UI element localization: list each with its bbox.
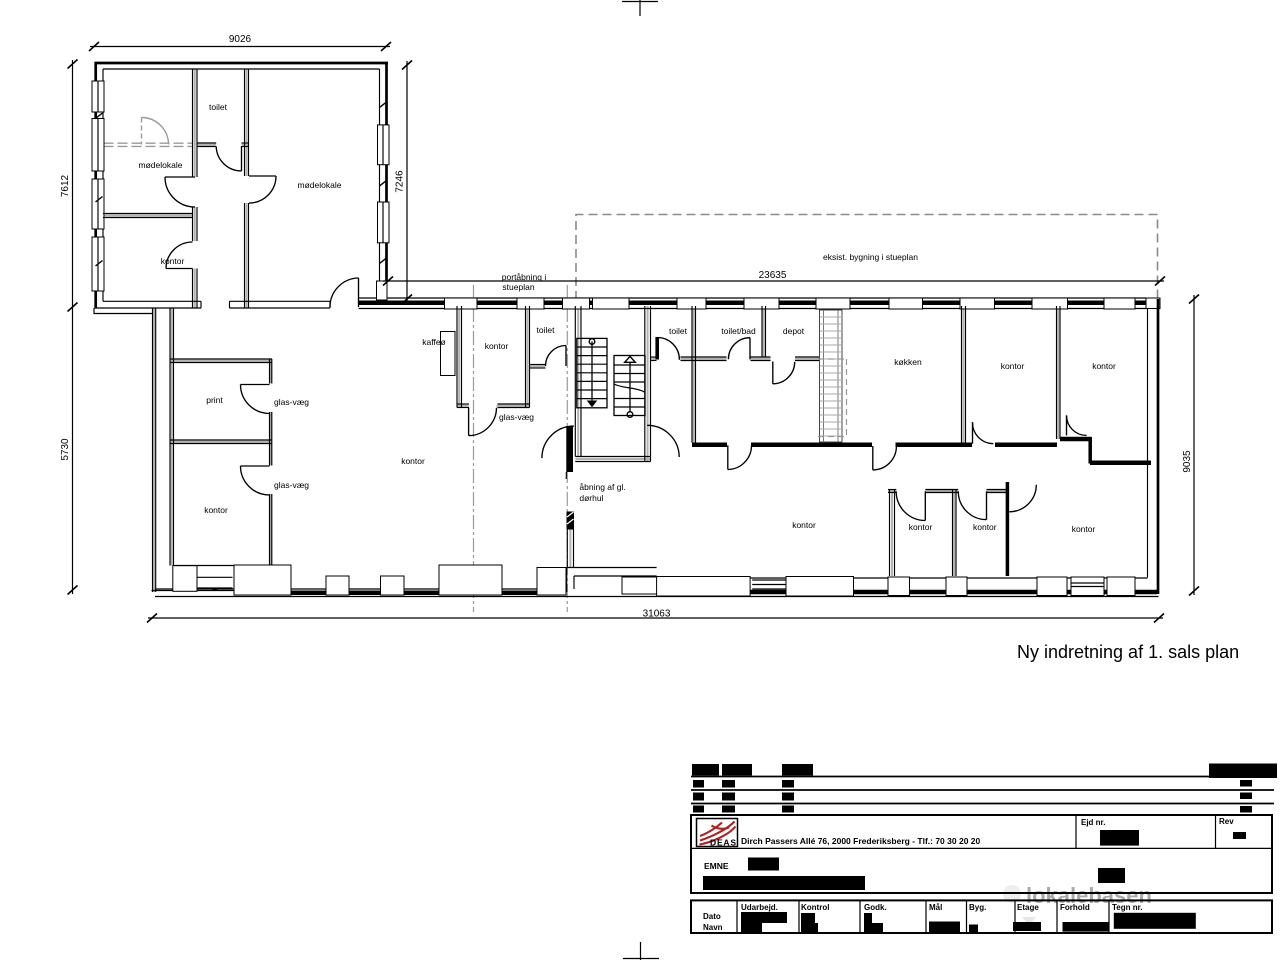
svg-text:Godk.: Godk. xyxy=(864,903,887,912)
svg-text:kontor: kontor xyxy=(204,505,228,515)
svg-text:DEAS: DEAS xyxy=(710,838,737,848)
svg-text:glas-væg: glas-væg xyxy=(274,397,309,407)
svg-text:Mål: Mål xyxy=(929,903,942,912)
svg-text:Navn: Navn xyxy=(703,923,723,932)
svg-text:stueplan: stueplan xyxy=(502,282,534,292)
svg-text:kontor: kontor xyxy=(973,522,997,532)
svg-text:glas-væg: glas-væg xyxy=(499,412,534,422)
svg-text:køkken: køkken xyxy=(894,357,922,367)
svg-text:5730: 5730 xyxy=(60,438,71,461)
svg-text:Kontrol: Kontrol xyxy=(801,903,829,912)
svg-text:dørhul: dørhul xyxy=(579,493,603,503)
svg-text:kontor: kontor xyxy=(792,520,816,530)
svg-text:toilet: toilet xyxy=(669,326,688,336)
svg-text:depot: depot xyxy=(783,326,805,336)
svg-text:EMNE: EMNE xyxy=(704,861,729,871)
svg-text:mødelokale: mødelokale xyxy=(298,180,342,190)
svg-text:kontor: kontor xyxy=(1092,361,1116,371)
svg-text:Tegn nr.: Tegn nr. xyxy=(1112,903,1143,912)
svg-text:kontor: kontor xyxy=(1001,361,1025,371)
svg-text:mødelokale: mødelokale xyxy=(139,160,183,170)
svg-text:7246: 7246 xyxy=(395,170,406,193)
svg-text:toilet: toilet xyxy=(209,102,228,112)
svg-text:kontor: kontor xyxy=(909,522,933,532)
svg-text:toilet: toilet xyxy=(537,325,556,335)
svg-text:toilet/bad: toilet/bad xyxy=(721,326,756,336)
svg-text:kontor: kontor xyxy=(161,256,185,266)
svg-text:23635: 23635 xyxy=(759,270,787,281)
svg-text:Ny indretning af 1. sals plan: Ny indretning af 1. sals plan xyxy=(1017,642,1239,662)
svg-text:eksist. bygning i stueplan: eksist. bygning i stueplan xyxy=(823,252,918,262)
svg-text:Ejd nr.: Ejd nr. xyxy=(1081,818,1105,827)
svg-text:9035: 9035 xyxy=(1182,450,1193,473)
svg-text:Forhold: Forhold xyxy=(1060,903,1090,912)
svg-text:7612: 7612 xyxy=(60,174,71,197)
svg-text:Dato: Dato xyxy=(703,912,721,921)
svg-text:Etage: Etage xyxy=(1017,903,1039,912)
svg-text:Dirch Passers Allé 76, 2000 Fr: Dirch Passers Allé 76, 2000 Frederiksber… xyxy=(741,836,981,846)
svg-text:kontor: kontor xyxy=(1072,524,1096,534)
svg-text:Byg.: Byg. xyxy=(969,903,986,912)
svg-text:kontor: kontor xyxy=(485,341,509,351)
svg-text:Rev: Rev xyxy=(1219,817,1234,826)
svg-text:9026: 9026 xyxy=(229,34,252,45)
svg-text:åbning af gl.: åbning af gl. xyxy=(579,482,625,492)
svg-text:glas-væg: glas-væg xyxy=(274,480,309,490)
svg-text:Udarbejd.: Udarbejd. xyxy=(741,903,778,912)
svg-text:kaffeø: kaffeø xyxy=(422,337,445,347)
svg-text:kontor: kontor xyxy=(401,456,425,466)
svg-text:31063: 31063 xyxy=(643,609,671,620)
svg-text:print: print xyxy=(206,395,223,405)
